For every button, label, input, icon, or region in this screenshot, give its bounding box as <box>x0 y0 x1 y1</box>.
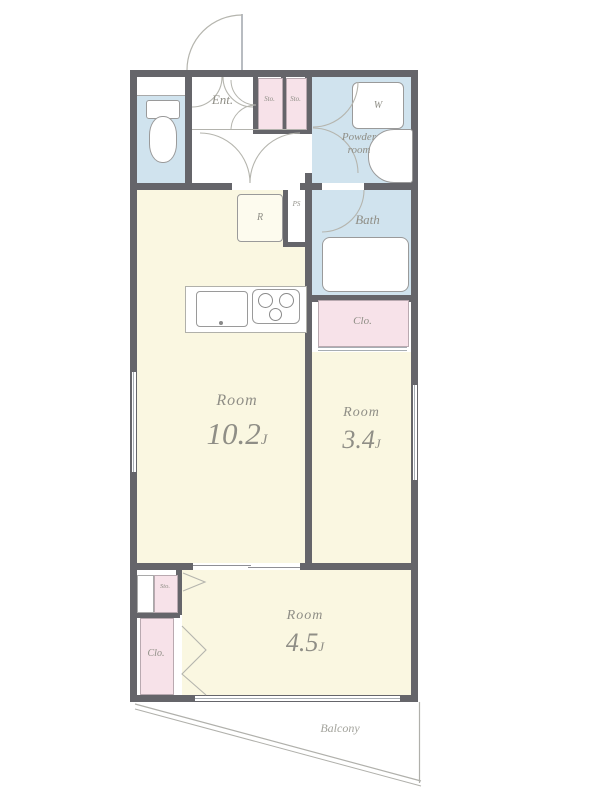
window-right-line <box>414 385 415 480</box>
powder-room-label: Powder room <box>315 131 403 156</box>
room-4-5-size: 4.5J <box>210 628 400 658</box>
refrigerator-space: R <box>237 194 283 242</box>
storage-top-1-label: Sto. <box>257 95 282 103</box>
floor-plan: W R <box>0 0 600 800</box>
room-10-2-name: Room <box>152 392 322 410</box>
room-3-4-floor <box>312 352 411 563</box>
room-3-4-name: Room <box>312 405 411 421</box>
storage-top-2-label: Sto. <box>285 95 306 103</box>
powder-room-label-line2: room <box>315 144 403 157</box>
closet-right-front-line-2 <box>318 350 407 351</box>
storage-top-2-box <box>286 78 307 130</box>
room-3-4-label: Room 3.4J <box>312 405 411 455</box>
washer-label: W <box>374 100 382 111</box>
pipe-space-box <box>288 190 305 242</box>
closet-right-front-line-1 <box>318 347 407 348</box>
toilet-upper-box <box>137 77 185 96</box>
room-4-5-name: Room <box>210 608 400 624</box>
room-10-2-floor <box>137 190 305 563</box>
window-left-line <box>133 372 134 472</box>
room-4-5-label: Room 4.5J <box>210 608 400 658</box>
hall-door-arc-right <box>250 133 300 183</box>
sliding-door-panel-2 <box>248 567 300 568</box>
closet-bottom-label: Clo. <box>140 648 172 660</box>
burner-icon <box>269 308 282 321</box>
bath-label: Bath <box>330 213 405 228</box>
room-3-4-size: 3.4J <box>312 425 411 455</box>
stove-icon <box>252 289 300 324</box>
hall-door-arc-left <box>200 133 250 183</box>
storage-top-1-box <box>258 78 283 130</box>
meter-box <box>137 575 154 613</box>
wall-entry-bottom-left <box>137 183 232 190</box>
refrigerator-label: R <box>257 212 263 223</box>
wall-powder-bath <box>364 183 411 190</box>
storage-bottom-box <box>154 575 178 613</box>
balcony-window-line <box>195 698 400 699</box>
kitchen-faucet-dot <box>219 321 223 325</box>
wall-ps-bottom <box>283 242 312 247</box>
washer-icon: W <box>352 82 404 129</box>
burner-icon <box>258 293 273 308</box>
wall-toilet-right <box>185 77 192 190</box>
entrance-label: Ent. <box>192 93 253 108</box>
toilet-bowl-icon <box>149 116 177 163</box>
sliding-door-panel-1 <box>193 565 251 566</box>
storage-bottom-label: Sto. <box>154 583 176 590</box>
closet-right-label: Clo. <box>318 315 407 328</box>
balcony-edge-line-2 <box>135 709 421 786</box>
room-10-2-label: Room 10.2J <box>152 392 322 452</box>
wall-entry-bottom-mid <box>300 183 322 190</box>
balcony-edge-line-1 <box>135 704 421 781</box>
burner-icon <box>279 293 294 308</box>
powder-room-label-line1: Powder <box>315 131 403 144</box>
bathtub-icon <box>322 237 409 292</box>
balcony-label: Balcony <box>280 722 400 736</box>
wall-top <box>130 70 418 77</box>
entrance-door-swing-arc <box>187 15 242 70</box>
pipe-space-label: PS <box>288 200 305 208</box>
room-10-2-size: 10.2J <box>152 416 322 452</box>
wall-center-divider <box>305 190 312 570</box>
entry-step-line <box>192 129 305 130</box>
